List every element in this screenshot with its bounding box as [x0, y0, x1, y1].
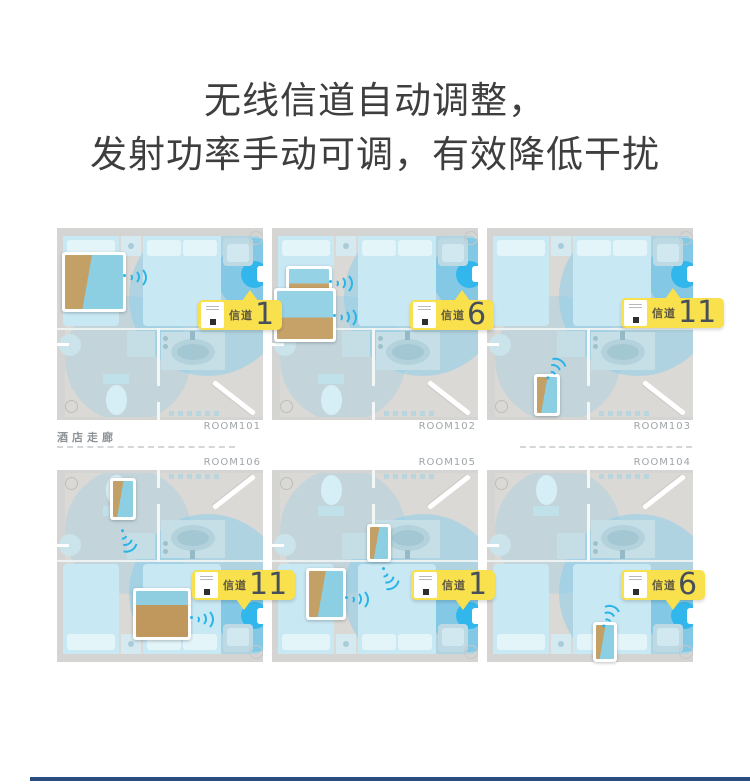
wifi-signal-icon [330, 272, 352, 294]
room-overlay: 信道 6 [272, 228, 478, 420]
bottom-accent-bar [30, 777, 750, 781]
badge-tail [665, 280, 681, 299]
room-overlay: 信道 1 [272, 470, 478, 662]
tv-device [62, 252, 126, 312]
title-line-2: 发射功率手动可调，有效降低干扰 [0, 128, 750, 182]
tv-device [133, 588, 191, 640]
channel-number: 6 [467, 302, 486, 328]
wall-ap-icon [414, 572, 437, 598]
wifi-signal-icon [346, 588, 368, 610]
room-overlay: 信道 11 [487, 228, 693, 420]
channel-badge: 信道 6 [410, 300, 494, 330]
wall-ap-icon [624, 572, 647, 598]
phone-device [367, 524, 391, 562]
channel-label: 信道 [223, 577, 247, 593]
room-overlay: 信道 6 [487, 470, 693, 662]
room-label: ROOM106 [204, 457, 261, 468]
device-screen [65, 255, 123, 309]
channel-label: 信道 [652, 577, 676, 593]
device-screen [277, 291, 333, 339]
device-screen [309, 571, 343, 617]
channel-number: 11 [249, 572, 287, 598]
wifi-signal-icon [373, 563, 404, 594]
badge-tail [455, 599, 471, 618]
room-tile-room105: 信道 1 ROOM105 [272, 470, 478, 662]
badge-tail [665, 599, 681, 618]
wifi-signal-icon [191, 608, 213, 630]
channel-badge: 信道 11 [192, 570, 295, 600]
title-line-1: 无线信道自动调整， [0, 74, 750, 128]
device-screen [113, 481, 133, 517]
wifi-signal-icon [124, 266, 146, 288]
room-label: ROOM102 [419, 421, 476, 432]
channel-label: 信道 [652, 305, 676, 321]
room-label: ROOM105 [419, 457, 476, 468]
channel-number: 1 [255, 302, 274, 328]
corridor-label: 酒店走廊 [57, 429, 117, 445]
room-tile-room102: 信道 6 ROOM102 [272, 228, 478, 420]
room-label: ROOM104 [634, 457, 691, 468]
channel-label: 信道 [442, 577, 466, 593]
tv-device [306, 568, 346, 620]
wifi-signal-icon [111, 526, 141, 556]
device-screen [370, 527, 388, 559]
channel-badge: 信道 1 [198, 300, 282, 330]
room-label: ROOM103 [634, 421, 691, 432]
channel-label: 信道 [229, 307, 253, 323]
wifi-signal-icon [334, 306, 356, 328]
channel-badge: 信道 1 [411, 570, 495, 600]
room-overlay: 信道 11 [57, 470, 263, 662]
tv-device [274, 288, 336, 342]
wall-ap-icon [201, 302, 224, 328]
wall-ap-icon [624, 300, 647, 326]
badge-tail [454, 282, 470, 301]
room-overlay: 信道 1 [57, 228, 263, 420]
wall-ap-icon [195, 572, 218, 598]
room-tile-room103: 信道 11 ROOM103 [487, 228, 693, 420]
room-tile-room106: 信道 11 ROOM106 [57, 470, 263, 662]
page-title: 无线信道自动调整， 发射功率手动可调，有效降低干扰 [0, 74, 750, 182]
wall-ap-icon [413, 302, 436, 328]
phone-device [110, 478, 136, 520]
badge-tail [236, 599, 252, 618]
device-screen [136, 591, 188, 637]
device-screen [596, 625, 614, 659]
room-tile-room104: 信道 6 ROOM104 [487, 470, 693, 662]
room-label: ROOM101 [204, 421, 261, 432]
room-tile-room101: 信道 1 ROOM101 [57, 228, 263, 420]
channel-label: 信道 [441, 307, 465, 323]
corridor-dashed-line-left [57, 446, 235, 448]
channel-number: 1 [468, 572, 487, 598]
corridor-dashed-line-right [520, 446, 692, 448]
channel-number: 11 [678, 300, 716, 326]
channel-badge: 信道 6 [621, 570, 705, 600]
channel-number: 6 [678, 572, 697, 598]
channel-badge: 信道 11 [621, 298, 724, 328]
badge-tail [242, 282, 258, 301]
page: 无线信道自动调整， 发射功率手动可调，有效降低干扰 酒店走廊 [0, 0, 750, 784]
